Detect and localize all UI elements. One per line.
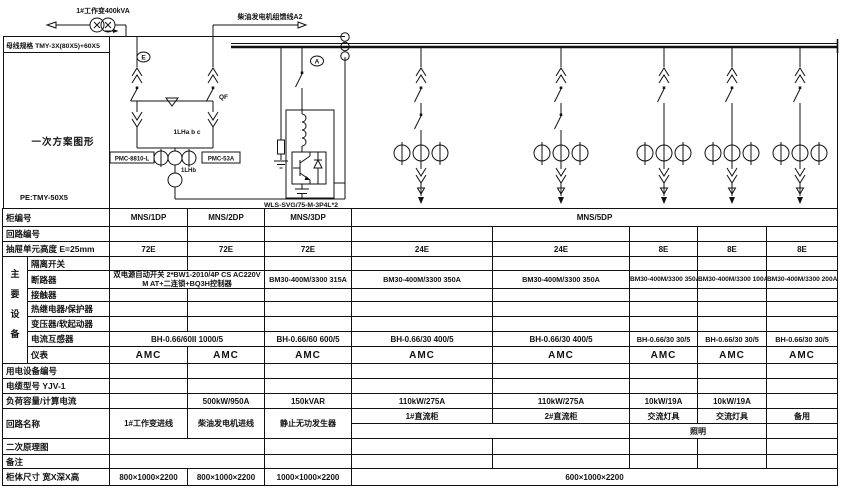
circuit-name-cell: 静止无功发生器 (265, 409, 352, 439)
contactor-cell (110, 289, 188, 302)
circuit-name-sub-cell (352, 424, 630, 439)
ct-cell: BH-0.66/60 600/5 (265, 332, 352, 347)
cable-type-cell (493, 379, 630, 394)
thermal-relay-cell (188, 302, 265, 317)
cable-type-cell (110, 379, 188, 394)
device-no-cell (493, 364, 630, 379)
main-busbar (231, 39, 838, 53)
cabinet-size-label: 柜体尺寸 宽X深X高 (3, 469, 110, 486)
load-cell: 10kW/19A (630, 394, 698, 409)
cable-type-cell (265, 379, 352, 394)
secondary-diagram-cell (265, 439, 352, 455)
circuit-no-cell (698, 227, 767, 242)
fuse-icon (278, 140, 285, 154)
transformer-starter-cell (265, 317, 352, 332)
row-unit-height: 抽屉单元高度 E=25mm 72E 72E 72E 24E 24E 8E 8E … (3, 242, 838, 257)
contactor-cell (630, 289, 698, 302)
load-cell (767, 394, 838, 409)
lighting-cell: 照明 (630, 424, 767, 439)
ct-cell: BH-0.66/30 30/5 (767, 332, 838, 347)
transformer-starter-label: 变压器/软起动器 (28, 317, 110, 332)
cable-type-cell (767, 379, 838, 394)
row-load: 负荷容量/计算电流 500kW/950A 150kVAR 110kW/275A … (3, 394, 838, 409)
cabinet-no-cell: MNS/2DP (188, 209, 265, 227)
transformer-starter-cell (698, 317, 767, 332)
meter-cell: AMC (493, 347, 630, 364)
transformer-starter-cell (630, 317, 698, 332)
meter-cell: AMC (265, 347, 352, 364)
breaker-cell: BM30-400M/3300 350A (630, 271, 698, 289)
contactor-cell (352, 289, 493, 302)
transformer-starter-cell (767, 317, 838, 332)
secondary-diagram-cell (110, 439, 265, 455)
row-cable-type: 电缆型号 YJV-1 (3, 379, 838, 394)
unit-height-cell: 72E (188, 242, 265, 257)
remarks-label: 备注 (3, 455, 110, 469)
meter-right-label: PMC-53A (208, 157, 235, 163)
secondary-diagram-label: 二次原理图 (3, 439, 110, 455)
circuit-no-cell (493, 227, 630, 242)
row-thermal-relay: 热继电器/保护器 (3, 302, 838, 317)
contactor-cell (188, 289, 265, 302)
device-no-cell (265, 364, 352, 379)
scheme-title: 一次方案图形 (18, 134, 108, 148)
row-transformer-starter: 变压器/软起动器 (3, 317, 838, 332)
row-secondary-diagram: 二次原理图 (3, 439, 838, 455)
row-ct: 电流互感器 BH-0.66/60II 1000/5 BH-0.66/60 600… (3, 332, 838, 347)
secondary-diagram-cell (630, 439, 698, 455)
contactor-cell (767, 289, 838, 302)
remarks-cell (110, 455, 265, 469)
ammeter-tag-label: A (315, 59, 320, 66)
device-no-cell (767, 364, 838, 379)
ct-cell: BH-0.66/30 400/5 (352, 332, 493, 347)
circuit-name-cell: 交流灯具 (698, 409, 767, 424)
meter-label: 仪表 (28, 347, 110, 364)
cable-type-cell (698, 379, 767, 394)
thermal-relay-cell (698, 302, 767, 317)
circuit-name-label: 回路名称 (3, 409, 110, 439)
transformer-starter-cell (493, 317, 630, 332)
circuit-no-label: 回路编号 (3, 227, 110, 242)
breaker-cell: BM30-400M/3300 100A (698, 271, 767, 289)
meter-cell: AMC (698, 347, 767, 364)
breaker-cell: BM30-400M/3300 200A (767, 271, 838, 289)
device-no-cell (188, 364, 265, 379)
breaker-label: 断路器 (28, 271, 110, 289)
row-circuit-name-top: 回路名称 1#工作变进线 柴油发电机进线 静止无功发生器 1#直流柜 2#直流柜… (3, 409, 838, 424)
busbar-spec: 母线规格 TMY-3X(80X5)+60X5 (3, 36, 110, 53)
meter-cell: AMC (188, 347, 265, 364)
contactor-label: 接触器 (28, 289, 110, 302)
cabinet-no-cell: MNS/3DP (265, 209, 352, 227)
isolator-cell (767, 257, 838, 271)
row-circuit-no: 回路编号 (3, 227, 838, 242)
circuit-name-cell: 1#直流柜 (352, 409, 493, 424)
circuit-name-sub-cell (767, 424, 838, 439)
circuit-no-cell (352, 227, 493, 242)
contactor-cell (493, 289, 630, 302)
breaker-cell-incomers: 双电源自动开关 2*BW1-2010/4P CS AC220V M AT+二连锁… (110, 271, 265, 289)
row-cabinet-size: 柜体尺寸 宽X深X高 800×1000×2200 800×1000×2200 1… (3, 469, 838, 486)
unit-height-cell: 8E (698, 242, 767, 257)
feeder-dc-cabinet-1 (394, 47, 448, 204)
meter-cell: AMC (110, 347, 188, 364)
remarks-cell (767, 455, 838, 469)
pe-spec: PE:TMY-50X5 (20, 193, 110, 202)
remarks-cell (698, 455, 767, 469)
thermal-relay-cell (767, 302, 838, 317)
thermal-relay-label: 热继电器/保护器 (28, 302, 110, 317)
secondary-diagram-cell (698, 439, 767, 455)
secondary-diagram-cell (767, 439, 838, 455)
unit-height-cell: 72E (265, 242, 352, 257)
isolator-cell (188, 257, 265, 271)
meter-left-label: PMC-8810-L (115, 157, 150, 163)
single-line-diagram-sheet: 1#工作变400kVA 柴油发电机组馈线A2 (0, 0, 847, 497)
unit-height-cell: 24E (352, 242, 493, 257)
remarks-cell (352, 455, 493, 469)
cable-type-cell (352, 379, 493, 394)
load-cell (110, 394, 188, 409)
cabinet-size-cell: 800×1000×2200 (110, 469, 188, 486)
ct-label: 电流互感器 (28, 332, 110, 347)
device-no-label: 用电设备编号 (3, 364, 110, 379)
load-cell: 150kVAR (265, 394, 352, 409)
secondary-diagram-cell (493, 439, 630, 455)
circuit-no-cell (767, 227, 838, 242)
ct-group-tag: 1LHa b c (173, 129, 200, 136)
isolator-cell (110, 257, 188, 271)
row-cabinet-no: 柜编号 MNS/1DP MNS/2DP MNS/3DP MNS/5DP (3, 209, 838, 227)
primary-scheme-drawing: 1#工作变400kVA 柴油发电机组馈线A2 (0, 0, 847, 208)
ct-icon (168, 173, 182, 187)
device-no-cell (698, 364, 767, 379)
cable-type-cell (188, 379, 265, 394)
thermal-relay-cell (493, 302, 630, 317)
unit-height-cell: 8E (767, 242, 838, 257)
row-contactor: 接触器 (3, 289, 838, 302)
thermal-relay-cell (265, 302, 352, 317)
circuit-name-cell: 1#工作变进线 (110, 409, 188, 439)
row-remarks: 备注 (3, 455, 838, 469)
cable-type-label: 电缆型号 YJV-1 (3, 379, 110, 394)
main-equipment-group-label: 主要设备 (3, 257, 28, 364)
breaker-tag-label: QF (219, 94, 228, 101)
cabinet-no-cell: MNS/1DP (110, 209, 188, 227)
feeder-ac-lighting-2 (705, 47, 759, 204)
circuit-name-cell: 交流灯具 (630, 409, 698, 424)
load-cell: 110kW/275A (352, 394, 493, 409)
transformer-starter-cell (110, 317, 188, 332)
feeder-ac-lighting-1 (637, 47, 691, 204)
inductor-icon (302, 114, 306, 146)
load-cell: 110kW/275A (493, 394, 630, 409)
unit-height-cell: 72E (110, 242, 188, 257)
row-isolator: 主要设备 隔离开关 (3, 257, 838, 271)
isolator-label: 隔离开关 (28, 257, 110, 271)
ct-cell: BH-0.66/30 30/5 (630, 332, 698, 347)
cabinet-size-cell: 1000×1000×2200 (265, 469, 352, 486)
isolator-cell (352, 257, 493, 271)
ats-incomer (110, 33, 349, 199)
breaker-cell: BM30-400M/3300 315A (265, 271, 352, 289)
ct-cell-incomers: BH-0.66/60II 1000/5 (110, 332, 265, 347)
unit-height-cell: 24E (493, 242, 630, 257)
svg-compensator (274, 48, 345, 198)
cabinet-no-cell: MNS/5DP (352, 209, 838, 227)
load-label: 负荷容量/计算电流 (3, 394, 110, 409)
breaker-cell: BM30-400M/3300 350A (352, 271, 493, 289)
secondary-diagram-cell (352, 439, 493, 455)
ct-cell: BH-0.66/30 30/5 (698, 332, 767, 347)
thermal-relay-cell (110, 302, 188, 317)
generator-feeder-label: 柴油发电机组馈线A2 (237, 12, 303, 21)
remarks-cell (265, 455, 352, 469)
cabinet-no-label: 柜编号 (3, 209, 110, 227)
unit-height-cell: 8E (630, 242, 698, 257)
feeder-spare (773, 47, 827, 204)
panel-schedule-table: 柜编号 MNS/1DP MNS/2DP MNS/3DP MNS/5DP 回路编号… (2, 208, 838, 486)
cabinet-size-cell: 800×1000×2200 (188, 469, 265, 486)
earth-tag-label: E (141, 55, 146, 62)
isolator-cell (698, 257, 767, 271)
load-cell: 10kW/19A (698, 394, 767, 409)
circuit-name-cell: 柴油发电机进线 (188, 409, 265, 439)
device-no-cell (352, 364, 493, 379)
generator-feeder (213, 22, 306, 37)
transformer-starter-cell (188, 317, 265, 332)
circuit-no-cell (630, 227, 698, 242)
circuit-no-cell (110, 227, 188, 242)
interlock-icon (166, 98, 178, 106)
contactor-cell (698, 289, 767, 302)
circuit-no-cell (188, 227, 265, 242)
isolator-cell (265, 257, 352, 271)
cable-type-cell (630, 379, 698, 394)
row-breaker: 断路器 双电源自动开关 2*BW1-2010/4P CS AC220V M AT… (3, 271, 838, 289)
breaker-line2: M AT+二连锁+BQ3H控制器 (110, 280, 264, 288)
breaker-cell: BM30-400M/3300 350A (493, 271, 630, 289)
meter-cell: AMC (352, 347, 493, 364)
circuit-name-cell: 备用 (767, 409, 838, 424)
isolator-cell (630, 257, 698, 271)
transformer-feeder-label: 1#工作变400kVA (76, 6, 130, 15)
device-no-cell (110, 364, 188, 379)
device-no-cell (630, 364, 698, 379)
circuit-no-cell (265, 227, 352, 242)
remarks-cell (630, 455, 698, 469)
feeder-dc-cabinet-2 (534, 47, 588, 204)
ct-b-tag: 1LHb (181, 168, 196, 174)
cabinet-size-cell: 600×1000×2200 (352, 469, 838, 486)
ct-cell: BH-0.66/30 400/5 (493, 332, 630, 347)
thermal-relay-cell (352, 302, 493, 317)
contactor-cell (265, 289, 352, 302)
circuit-name-cell: 2#直流柜 (493, 409, 630, 424)
transformer-starter-cell (352, 317, 493, 332)
thermal-relay-cell (630, 302, 698, 317)
remarks-cell (493, 455, 630, 469)
row-meter: 仪表 AMC AMC AMC AMC AMC AMC AMC AMC (3, 347, 838, 364)
row-device-no: 用电设备编号 (3, 364, 838, 379)
unit-height-label: 抽屉单元高度 E=25mm (3, 242, 110, 257)
meter-cell: AMC (767, 347, 838, 364)
load-cell: 500kW/950A (188, 394, 265, 409)
isolator-cell (493, 257, 630, 271)
ct-icon (168, 151, 182, 165)
meter-cell: AMC (630, 347, 698, 364)
